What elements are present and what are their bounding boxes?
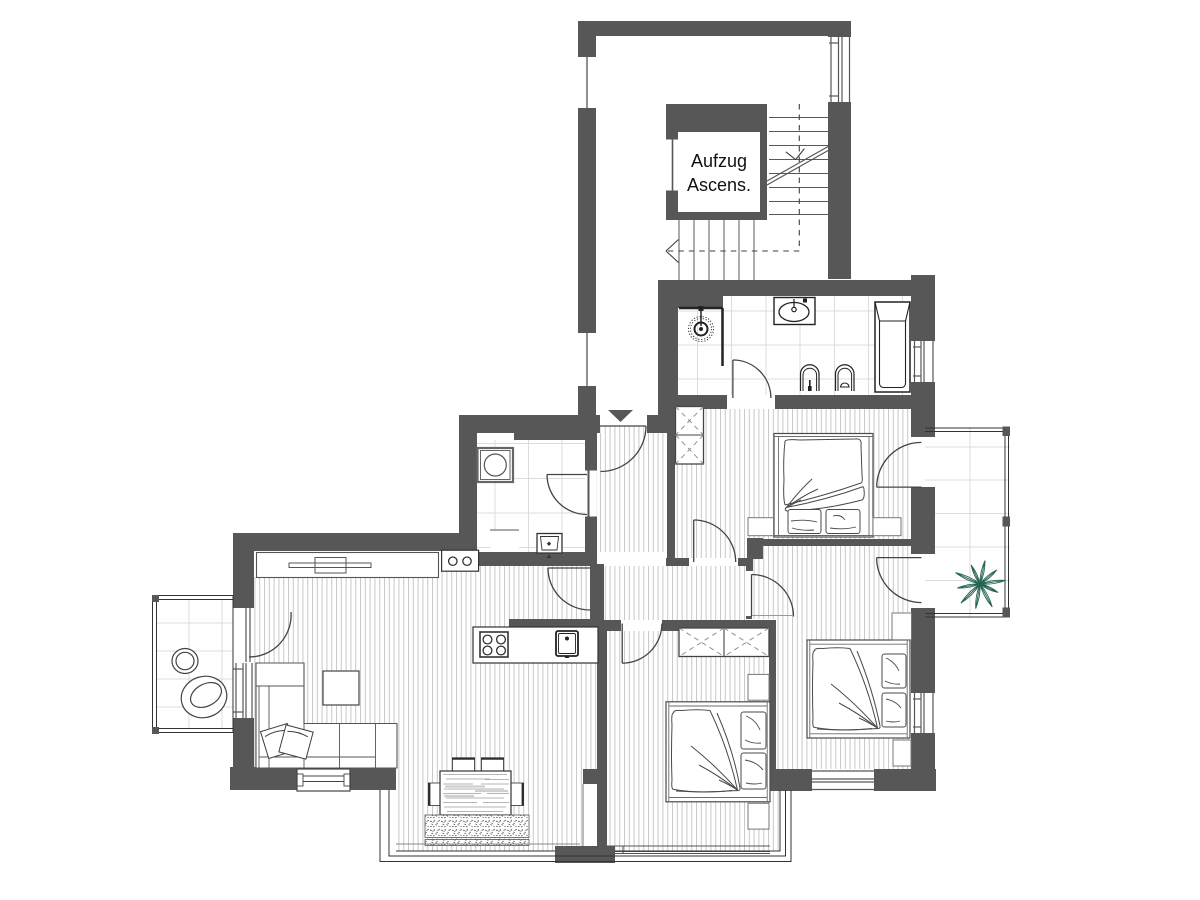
svg-text:Ascens.: Ascens. — [687, 175, 751, 195]
svg-text:Aufzug: Aufzug — [691, 151, 747, 171]
